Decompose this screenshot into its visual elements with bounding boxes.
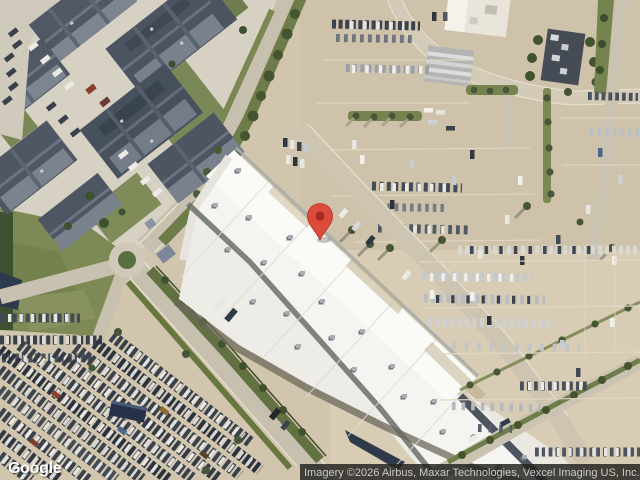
svg-text:Google: Google: [8, 460, 62, 477]
svg-text:Imagery ©2026 Airbus, Maxar Te: Imagery ©2026 Airbus, Maxar Technologies…: [304, 467, 640, 479]
